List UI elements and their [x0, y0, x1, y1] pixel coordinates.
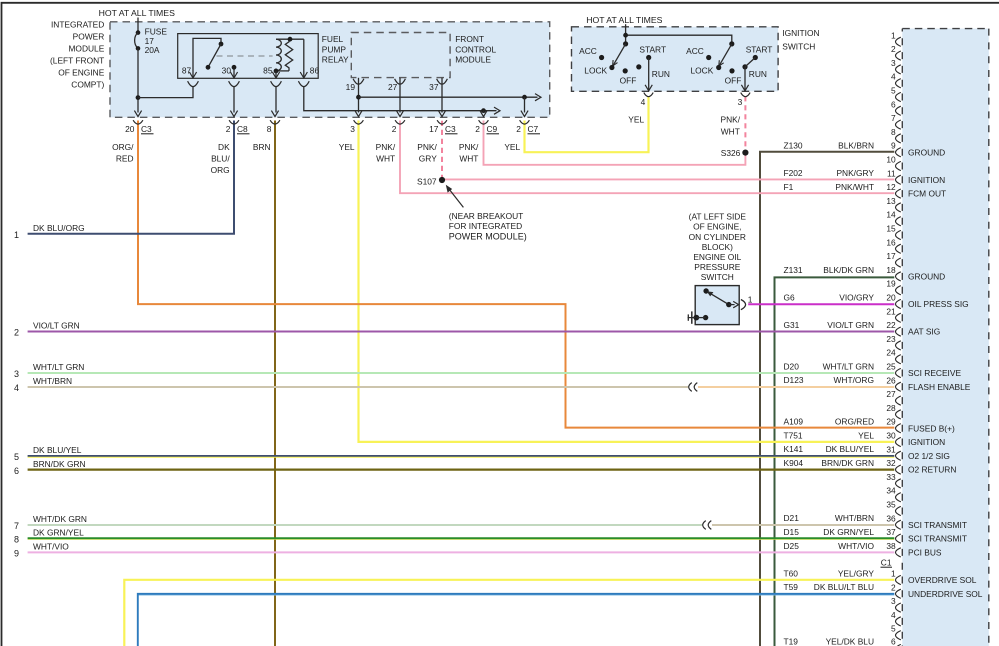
svg-text:5: 5	[891, 624, 896, 634]
svg-text:3: 3	[350, 124, 355, 134]
svg-text:13: 13	[886, 196, 896, 206]
svg-text:COMPT): COMPT)	[71, 79, 104, 89]
svg-text:VIO/LT GRN: VIO/LT GRN	[33, 321, 80, 331]
svg-text:3: 3	[738, 97, 743, 107]
svg-text:PNK/: PNK/	[721, 114, 741, 124]
svg-text:T751: T751	[784, 430, 803, 440]
svg-text:D25: D25	[784, 541, 800, 551]
svg-text:8: 8	[891, 127, 896, 137]
svg-text:RUN: RUN	[749, 69, 767, 79]
svg-text:12: 12	[886, 182, 896, 192]
svg-text:WHT/BRN: WHT/BRN	[835, 513, 874, 523]
svg-text:D15: D15	[784, 527, 800, 537]
svg-text:ACC: ACC	[686, 46, 704, 56]
svg-text:RELAY: RELAY	[322, 54, 349, 64]
svg-text:3: 3	[14, 369, 19, 379]
svg-text:7: 7	[14, 521, 19, 531]
svg-text:START: START	[746, 44, 773, 54]
svg-text:POWER MODULE): POWER MODULE)	[449, 231, 527, 241]
svg-text:2: 2	[14, 328, 19, 338]
svg-text:OVERDRIVE SOL: OVERDRIVE SOL	[908, 575, 977, 585]
svg-text:1: 1	[891, 569, 896, 579]
svg-text:WHT/LT GRN: WHT/LT GRN	[33, 362, 84, 372]
svg-text:6: 6	[14, 466, 19, 476]
svg-text:YEL: YEL	[504, 142, 520, 152]
svg-text:C9: C9	[487, 124, 498, 134]
svg-text:(NEAR BREAKOUT: (NEAR BREAKOUT	[449, 211, 523, 221]
svg-text:T59: T59	[784, 582, 799, 592]
svg-text:D20: D20	[784, 361, 800, 371]
svg-text:HOT AT ALL TIMES: HOT AT ALL TIMES	[99, 8, 175, 18]
svg-text:2: 2	[891, 44, 896, 54]
svg-text:Z130: Z130	[784, 141, 803, 151]
svg-text:ORG/: ORG/	[112, 142, 134, 152]
svg-text:5: 5	[891, 86, 896, 96]
svg-text:WHT/DK GRN: WHT/DK GRN	[33, 514, 87, 524]
svg-text:ENGINE OIL: ENGINE OIL	[693, 252, 741, 262]
svg-text:35: 35	[886, 500, 896, 510]
svg-text:C8: C8	[237, 124, 248, 134]
svg-text:PCI BUS: PCI BUS	[908, 548, 942, 558]
svg-text:18: 18	[886, 265, 896, 275]
svg-text:OFF: OFF	[620, 75, 637, 85]
svg-text:GROUND: GROUND	[908, 147, 945, 157]
svg-text:FOR INTEGRATED: FOR INTEGRATED	[449, 221, 522, 231]
svg-text:PNK/WHT: PNK/WHT	[835, 182, 874, 192]
svg-text:T60: T60	[784, 568, 799, 578]
svg-text:YEL: YEL	[858, 430, 874, 440]
svg-text:31: 31	[886, 444, 896, 454]
svg-text:WHT/VIO: WHT/VIO	[838, 541, 874, 551]
svg-text:9: 9	[891, 141, 896, 151]
svg-text:2: 2	[392, 124, 397, 134]
svg-text:POWER: POWER	[73, 31, 105, 41]
svg-text:19: 19	[886, 279, 896, 289]
svg-text:BLK/DK GRN: BLK/DK GRN	[823, 265, 874, 275]
svg-text:C7: C7	[528, 124, 539, 134]
svg-text:G6: G6	[784, 292, 796, 302]
svg-text:VIO/GRY: VIO/GRY	[839, 292, 874, 302]
svg-text:20A: 20A	[145, 45, 160, 55]
svg-text:15: 15	[886, 224, 896, 234]
svg-text:YEL: YEL	[628, 114, 644, 124]
svg-text:1: 1	[891, 30, 896, 40]
svg-text:WHT/VIO: WHT/VIO	[33, 542, 69, 552]
svg-text:8: 8	[14, 535, 19, 545]
svg-text:LOCK: LOCK	[691, 65, 714, 75]
svg-text:2: 2	[226, 124, 231, 134]
svg-text:WHT: WHT	[376, 153, 395, 163]
svg-text:10: 10	[886, 155, 896, 165]
svg-text:(AT LEFT SIDE: (AT LEFT SIDE	[689, 212, 747, 222]
svg-text:UNDERDRIVE SOL: UNDERDRIVE SOL	[908, 589, 983, 599]
svg-text:D21: D21	[784, 513, 800, 523]
svg-text:IGNITION: IGNITION	[782, 28, 819, 38]
svg-text:FLASH ENABLE: FLASH ENABLE	[908, 382, 971, 392]
svg-text:29: 29	[886, 417, 896, 427]
svg-text:34: 34	[886, 486, 896, 496]
svg-text:ORG: ORG	[211, 165, 230, 175]
svg-text:T19: T19	[784, 636, 799, 646]
svg-text:FUSED B(+): FUSED B(+)	[908, 423, 955, 433]
svg-text:RED: RED	[116, 153, 134, 163]
svg-text:C3: C3	[141, 124, 152, 134]
svg-text:30: 30	[886, 431, 896, 441]
svg-text:2: 2	[475, 124, 480, 134]
svg-text:VIO/LT GRN: VIO/LT GRN	[827, 320, 874, 330]
svg-text:4: 4	[14, 383, 19, 393]
svg-text:SWITCH: SWITCH	[701, 272, 734, 282]
svg-text:2: 2	[516, 124, 521, 134]
svg-text:C3: C3	[445, 124, 456, 134]
svg-text:BLK/BRN: BLK/BRN	[838, 141, 874, 151]
svg-text:SCI TRANSMIT: SCI TRANSMIT	[908, 534, 967, 544]
svg-text:PNK/GRY: PNK/GRY	[836, 168, 874, 178]
svg-text:PRESSURE: PRESSURE	[694, 262, 740, 272]
svg-text:FUEL: FUEL	[322, 34, 344, 44]
svg-text:22: 22	[886, 320, 896, 330]
svg-text:7: 7	[891, 113, 896, 123]
svg-text:SCI RECEIVE: SCI RECEIVE	[908, 368, 961, 378]
svg-text:DK BLU/YEL: DK BLU/YEL	[33, 445, 82, 455]
svg-text:6: 6	[891, 99, 896, 109]
svg-text:24: 24	[886, 348, 896, 358]
svg-text:DK BLU/ORG: DK BLU/ORG	[33, 223, 85, 233]
svg-text:32: 32	[886, 458, 896, 468]
svg-text:HOT AT ALL TIMES: HOT AT ALL TIMES	[586, 15, 662, 25]
svg-text:YEL/DK BLU: YEL/DK BLU	[826, 636, 874, 646]
svg-text:37: 37	[429, 82, 439, 92]
svg-text:14: 14	[886, 210, 896, 220]
svg-text:DK BLU/YEL: DK BLU/YEL	[826, 444, 875, 454]
svg-text:PNK/: PNK/	[376, 142, 396, 152]
svg-text:RUN: RUN	[652, 69, 670, 79]
svg-text:ON CYLINDER: ON CYLINDER	[689, 232, 746, 242]
svg-text:21: 21	[886, 306, 896, 316]
svg-text:6: 6	[891, 636, 896, 646]
svg-text:33: 33	[886, 472, 896, 482]
svg-text:WHT/BRN: WHT/BRN	[33, 376, 72, 386]
svg-text:IGNITION: IGNITION	[908, 437, 945, 447]
svg-text:WHT: WHT	[459, 153, 478, 163]
svg-text:D123: D123	[784, 375, 804, 385]
svg-text:WHT/ORG: WHT/ORG	[834, 375, 874, 385]
svg-text:SCI TRANSMIT: SCI TRANSMIT	[908, 520, 967, 530]
svg-text:25: 25	[886, 362, 896, 372]
svg-text:23: 23	[886, 334, 896, 344]
svg-text:1: 1	[748, 295, 753, 305]
svg-text:OF ENGINE,: OF ENGINE,	[693, 222, 741, 232]
svg-text:2: 2	[891, 582, 896, 592]
svg-text:4: 4	[641, 97, 646, 107]
svg-text:26: 26	[886, 375, 896, 385]
svg-text:O2 1/2 SIG: O2 1/2 SIG	[908, 451, 950, 461]
svg-text:F1: F1	[784, 182, 794, 192]
svg-text:K904: K904	[784, 458, 804, 468]
svg-text:CONTROL: CONTROL	[455, 44, 496, 54]
svg-text:C1: C1	[881, 557, 892, 567]
svg-text:17: 17	[886, 251, 896, 261]
svg-text:BRN/DK GRN: BRN/DK GRN	[821, 458, 874, 468]
svg-text:MODULE: MODULE	[455, 54, 491, 64]
svg-text:DK GRN/YEL: DK GRN/YEL	[33, 528, 84, 538]
svg-text:YEL/GRY: YEL/GRY	[838, 568, 875, 578]
svg-text:FRONT: FRONT	[455, 34, 484, 44]
svg-text:F202: F202	[784, 168, 803, 178]
svg-text:WHT/LT GRN: WHT/LT GRN	[823, 361, 874, 371]
svg-text:ACC: ACC	[579, 46, 597, 56]
svg-text:S326: S326	[721, 148, 741, 158]
svg-text:1: 1	[14, 230, 19, 240]
svg-text:START: START	[639, 44, 666, 54]
svg-text:5: 5	[14, 452, 19, 462]
svg-text:PNK/: PNK/	[417, 142, 437, 152]
svg-text:GROUND: GROUND	[908, 272, 945, 282]
svg-text:9: 9	[14, 549, 19, 559]
svg-text:BLOCK): BLOCK)	[702, 242, 733, 252]
svg-text:WHT: WHT	[721, 126, 740, 136]
svg-text:FCM OUT: FCM OUT	[908, 189, 946, 199]
svg-text:4: 4	[891, 72, 896, 82]
svg-text:DK: DK	[218, 142, 230, 152]
svg-text:INTEGRATED: INTEGRATED	[51, 19, 104, 29]
svg-text:O2 RETURN: O2 RETURN	[908, 465, 956, 475]
svg-text:YEL: YEL	[339, 142, 355, 152]
svg-text:OIL PRESS SIG: OIL PRESS SIG	[908, 299, 969, 309]
svg-text:86: 86	[310, 65, 320, 75]
svg-text:BLU/: BLU/	[211, 153, 230, 163]
svg-text:30: 30	[222, 65, 232, 75]
svg-text:20: 20	[886, 293, 896, 303]
svg-text:27: 27	[388, 82, 398, 92]
svg-text:ORG/RED: ORG/RED	[835, 417, 874, 427]
svg-text:SWITCH: SWITCH	[782, 41, 815, 51]
svg-text:28: 28	[886, 403, 896, 413]
svg-text:BRN/DK GRN: BRN/DK GRN	[33, 459, 86, 469]
svg-text:27: 27	[886, 389, 896, 399]
svg-text:19: 19	[346, 82, 356, 92]
svg-text:8: 8	[267, 124, 272, 134]
svg-text:G31: G31	[784, 320, 800, 330]
svg-text:K141: K141	[784, 444, 804, 454]
svg-text:3: 3	[891, 596, 896, 606]
svg-text:MODULE: MODULE	[68, 43, 104, 53]
svg-text:17: 17	[429, 124, 439, 134]
svg-text:S107: S107	[417, 177, 437, 187]
svg-text:Z131: Z131	[784, 265, 803, 275]
svg-text:(LEFT FRONT: (LEFT FRONT	[50, 55, 104, 65]
svg-text:DK GRN/YEL: DK GRN/YEL	[823, 527, 874, 537]
svg-text:PUMP: PUMP	[322, 44, 347, 54]
svg-text:37: 37	[886, 527, 896, 537]
svg-text:AAT SIG: AAT SIG	[908, 327, 940, 337]
svg-text:PNK/: PNK/	[459, 142, 479, 152]
svg-text:20: 20	[125, 124, 135, 134]
svg-text:OFF: OFF	[725, 75, 742, 85]
svg-text:GRY: GRY	[419, 153, 437, 163]
svg-text:36: 36	[886, 513, 896, 523]
svg-text:OF ENGINE: OF ENGINE	[58, 67, 104, 77]
svg-text:LOCK: LOCK	[584, 65, 607, 75]
svg-text:38: 38	[886, 541, 896, 551]
svg-text:BRN: BRN	[253, 142, 271, 152]
svg-text:4: 4	[891, 610, 896, 620]
svg-text:IGNITION: IGNITION	[908, 175, 945, 185]
svg-text:A109: A109	[784, 417, 804, 427]
svg-text:3: 3	[891, 58, 896, 68]
svg-text:DK BLU/LT BLU: DK BLU/LT BLU	[814, 582, 874, 592]
svg-text:16: 16	[886, 237, 896, 247]
svg-text:11: 11	[887, 168, 896, 178]
svg-text:85: 85	[263, 65, 273, 75]
